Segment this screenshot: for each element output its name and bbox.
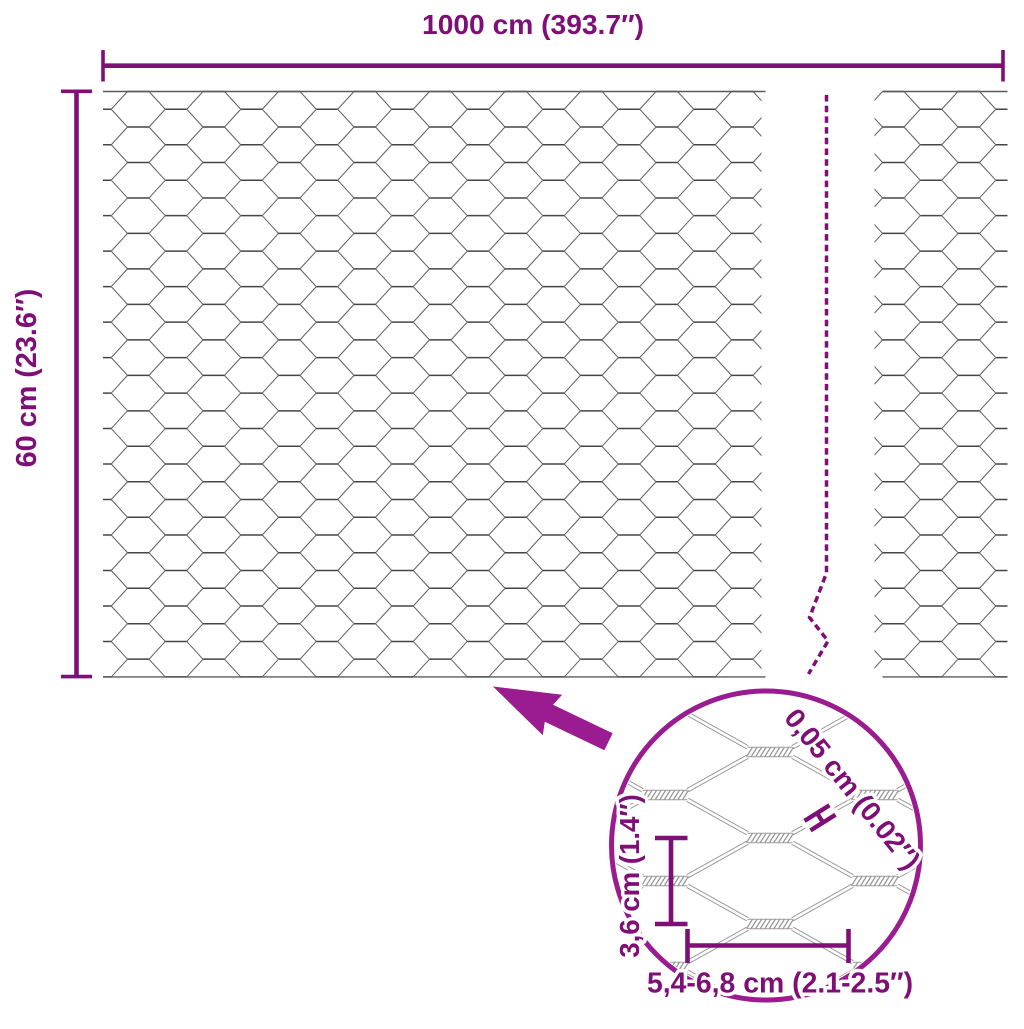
- svg-text:5,4-6,8 cm (2.1-2.5″): 5,4-6,8 cm (2.1-2.5″): [647, 968, 913, 1000]
- svg-text:1000 cm (393.7″): 1000 cm (393.7″): [422, 8, 644, 40]
- svg-text:3,6 cm (1.4″): 3,6 cm (1.4″): [614, 794, 645, 958]
- svg-text:60 cm (23.6″): 60 cm (23.6″): [11, 289, 43, 468]
